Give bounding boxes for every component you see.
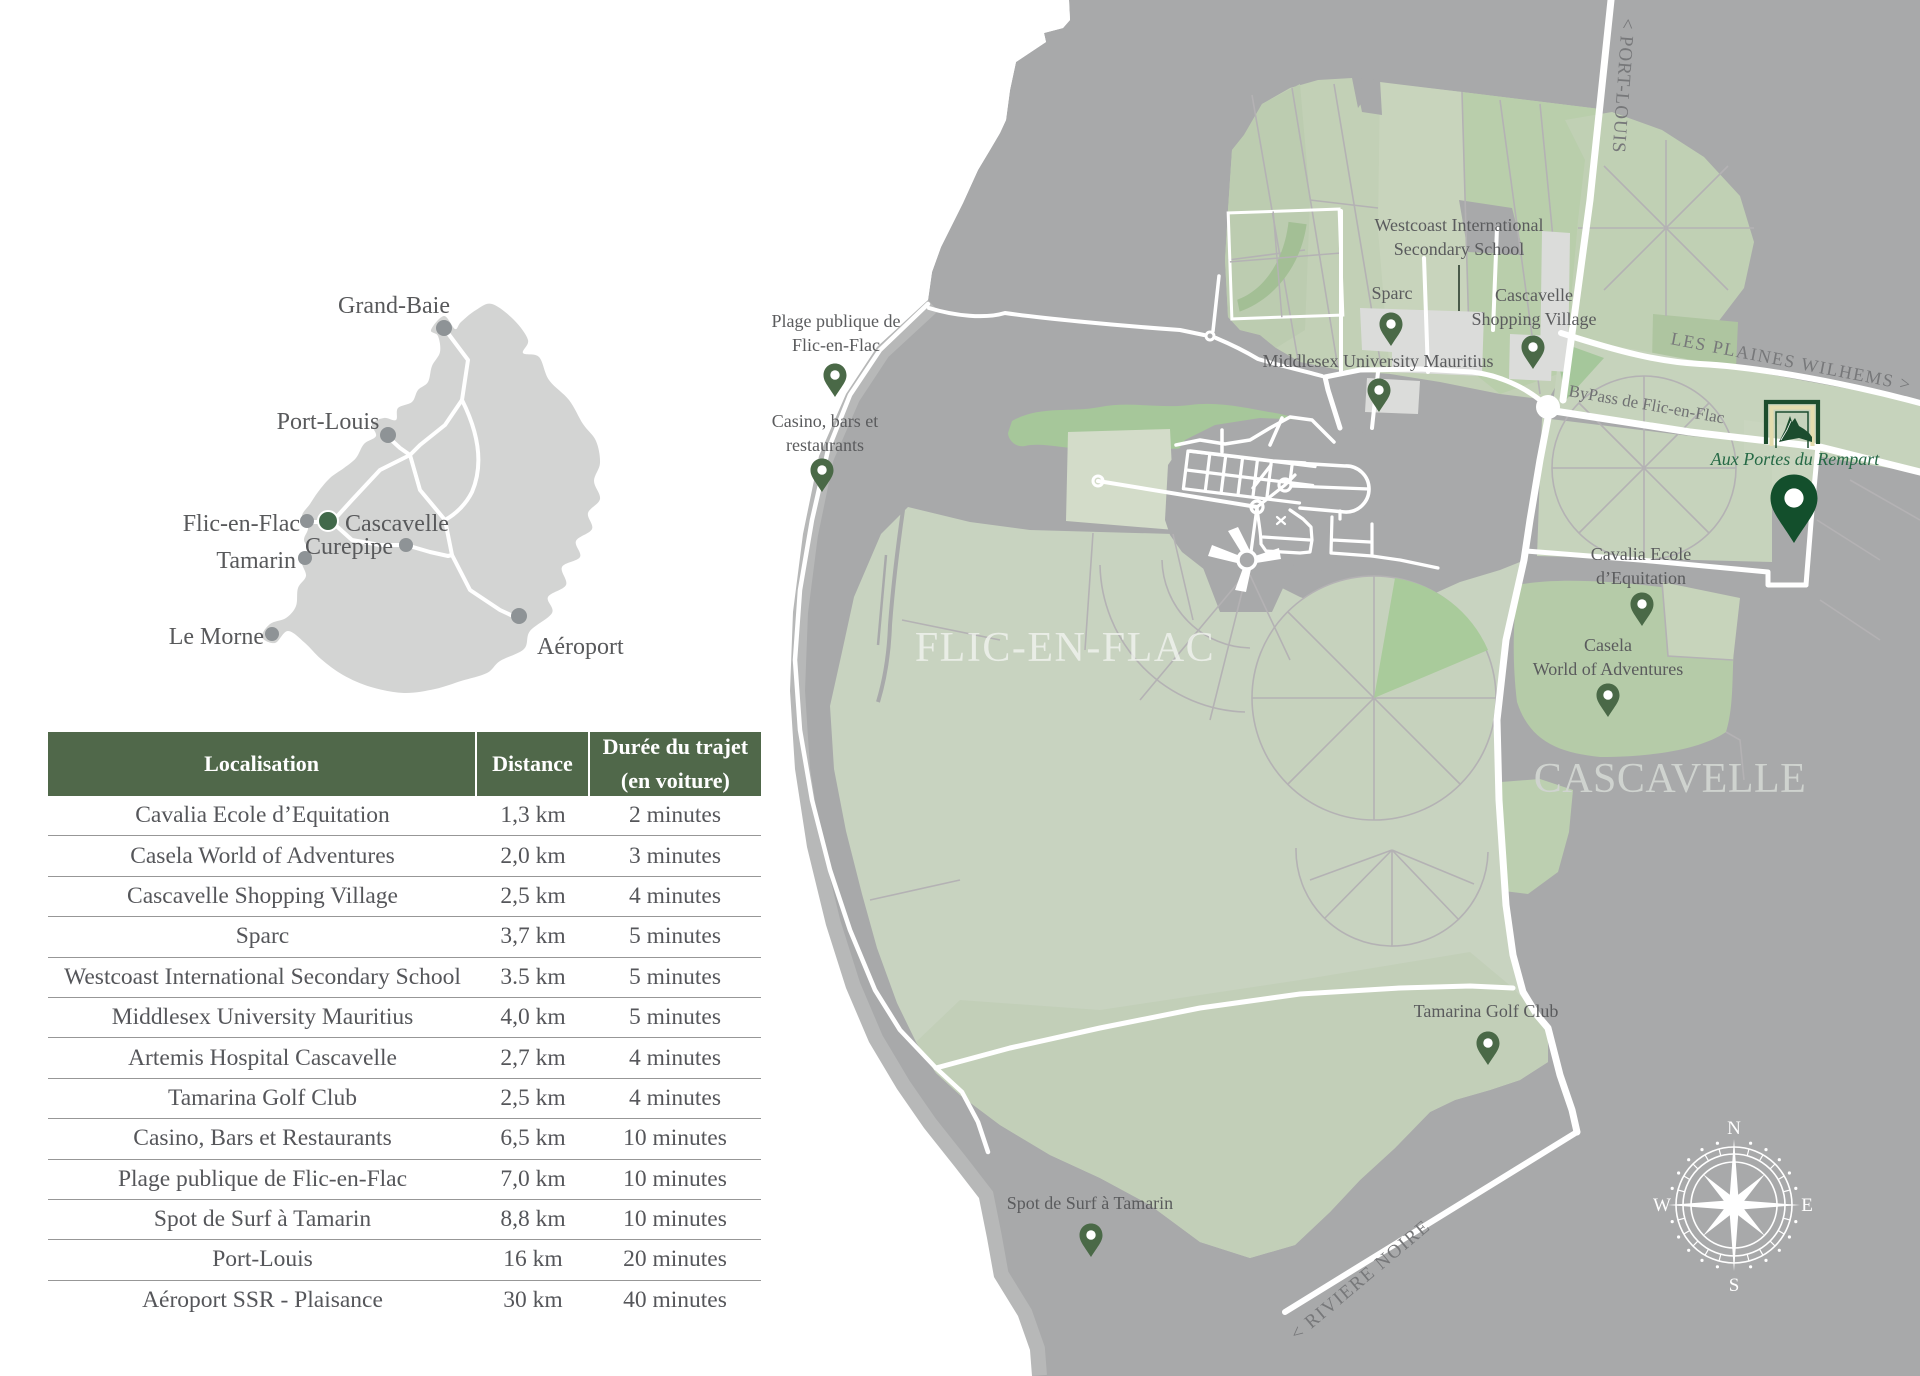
svg-text:Cascavelle: Cascavelle [1495,285,1573,305]
svg-text:Tamarin: Tamarin [216,548,296,574]
svg-text:Flic-en-Flac: Flic-en-Flac [792,335,880,355]
svg-text:Shopping Village: Shopping Village [1471,309,1596,329]
svg-text:Aux Portes du Rempart: Aux Portes du Rempart [1710,449,1880,469]
svg-text:Flic-en-Flac: Flic-en-Flac [183,511,300,537]
svg-text:E: E [1801,1195,1813,1216]
svg-text:FLIC-EN-FLAC: FLIC-EN-FLAC [915,625,1215,671]
svg-text:World of Adventures: World of Adventures [1533,659,1684,679]
svg-text:Cavalia Ecole: Cavalia Ecole [1591,544,1691,564]
svg-text:Secondary School: Secondary School [1394,239,1524,259]
svg-text:Curepipe: Curepipe [305,534,393,560]
svg-text:Casela: Casela [1584,635,1632,655]
svg-text:CASCAVELLE: CASCAVELLE [1534,756,1807,802]
svg-text:S: S [1729,1275,1740,1296]
svg-text:W: W [1653,1195,1671,1216]
svg-text:Spot de Surf à Tamarin: Spot de Surf à Tamarin [1007,1193,1173,1213]
svg-text:d’Equitation: d’Equitation [1596,568,1686,588]
svg-text:Port-Louis: Port-Louis [277,409,380,435]
svg-text:Le Morne: Le Morne [169,624,264,650]
svg-text:Sparc: Sparc [1372,283,1413,303]
svg-text:Tamarina Golf Club: Tamarina Golf Club [1414,1001,1559,1021]
svg-text:Westcoast International: Westcoast International [1375,215,1544,235]
svg-text:Grand-Baie: Grand-Baie [338,293,450,319]
svg-text:Middlesex University Mauritius: Middlesex University Mauritius [1263,351,1494,371]
svg-text:Casino, bars et: Casino, bars et [772,411,878,431]
svg-text:restaurants: restaurants [786,435,864,455]
svg-text:N: N [1727,1118,1741,1139]
svg-text:Aéroport: Aéroport [537,634,624,660]
svg-text:Plage publique de: Plage publique de [772,311,901,331]
